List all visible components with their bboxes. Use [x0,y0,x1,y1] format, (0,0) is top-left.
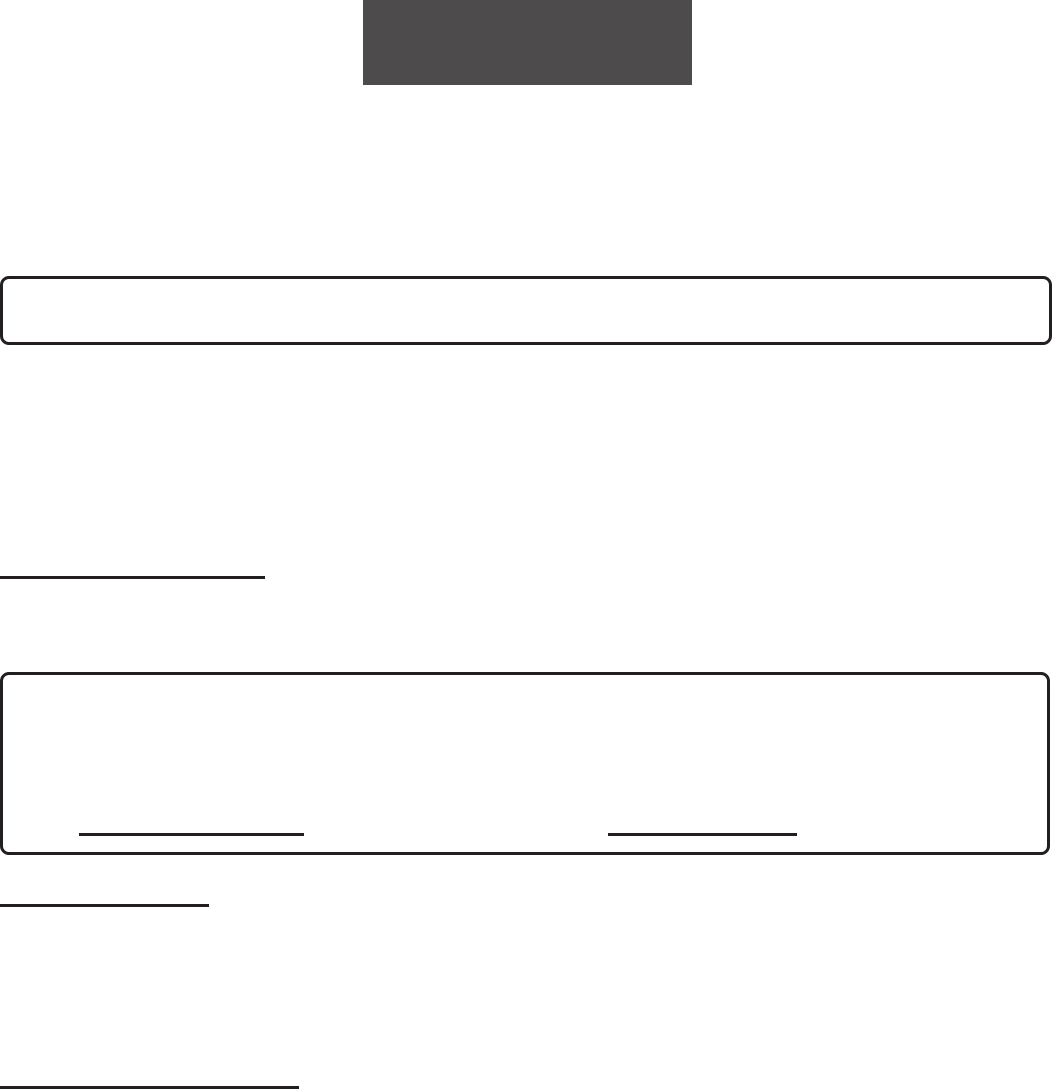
fill-in-line-5 [0,1086,299,1089]
document-page: { "document": { "background_color": "#ff… [0,0,1055,1091]
fill-in-line-3 [608,833,797,836]
form-box-lower [0,672,1050,855]
fill-in-line-2 [79,833,304,836]
fill-in-line-4 [0,904,209,907]
fill-in-line-1 [0,576,265,579]
form-box-upper [0,276,1052,345]
redaction-block [363,0,692,85]
